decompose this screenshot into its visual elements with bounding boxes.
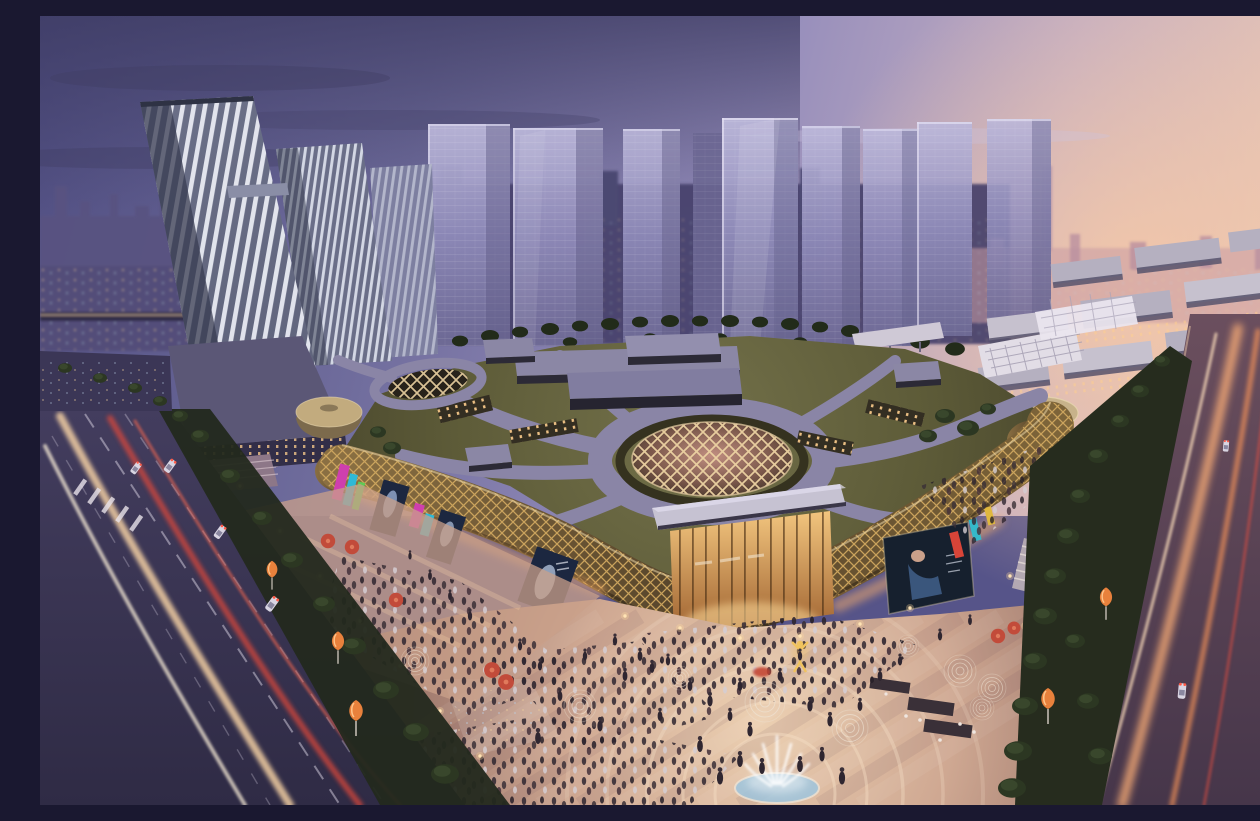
pedestrian bbox=[613, 634, 617, 646]
pedestrian bbox=[858, 698, 863, 711]
street-tree bbox=[128, 383, 142, 393]
street-lamp bbox=[1006, 572, 1014, 580]
street-tree bbox=[281, 552, 303, 567]
park-tree bbox=[1088, 748, 1112, 765]
street-tree bbox=[172, 410, 188, 421]
background-tree bbox=[812, 322, 828, 333]
street-tree bbox=[153, 396, 167, 406]
park-tree bbox=[1057, 528, 1079, 543]
roof-tree bbox=[980, 403, 996, 414]
pedestrian bbox=[623, 668, 628, 681]
street-lamp bbox=[476, 752, 484, 760]
background-tree bbox=[452, 336, 468, 347]
glass-tower-cluster bbox=[428, 118, 1051, 346]
pedestrian bbox=[408, 550, 411, 559]
corner-billboard-right bbox=[883, 522, 974, 614]
street-lamp bbox=[621, 612, 629, 620]
pedestrian bbox=[798, 649, 802, 661]
roof-tree bbox=[919, 430, 937, 443]
mall-aerial-rendering bbox=[40, 16, 1260, 805]
pedestrian bbox=[968, 614, 972, 625]
pedestrian bbox=[747, 722, 752, 737]
pedestrian bbox=[707, 692, 712, 707]
background-tree bbox=[945, 342, 965, 355]
pedestrian bbox=[428, 569, 432, 580]
pedestrian bbox=[583, 649, 587, 661]
pedestrian bbox=[650, 660, 655, 673]
background-tree bbox=[752, 317, 768, 328]
street-tree bbox=[252, 511, 272, 525]
pedestrian bbox=[535, 728, 541, 744]
park-tree bbox=[1033, 608, 1057, 625]
cafe-umbrella bbox=[389, 593, 403, 607]
pedestrian bbox=[827, 712, 832, 727]
red-sculpture bbox=[753, 667, 771, 677]
pedestrian bbox=[688, 678, 693, 691]
street-lamp bbox=[676, 624, 684, 632]
pedestrian bbox=[697, 736, 703, 752]
pedestrian bbox=[538, 659, 542, 671]
roof-tree bbox=[935, 409, 955, 423]
background-tree bbox=[692, 316, 708, 327]
pedestrian bbox=[778, 668, 783, 681]
street-tree bbox=[93, 373, 107, 383]
pedestrian bbox=[638, 648, 643, 661]
cafe-umbrella bbox=[1008, 622, 1021, 635]
pedestrian bbox=[666, 654, 670, 666]
roof-tree bbox=[370, 426, 386, 437]
park-tree bbox=[1023, 653, 1047, 670]
street-lamp bbox=[856, 620, 864, 628]
background-tree bbox=[572, 321, 588, 332]
park-tree bbox=[1004, 741, 1032, 761]
pedestrian bbox=[728, 708, 733, 721]
street-tree bbox=[58, 363, 72, 373]
roof-tree bbox=[383, 442, 401, 455]
pedestrian bbox=[898, 654, 902, 666]
background-tree bbox=[601, 318, 619, 330]
park-tree bbox=[1154, 355, 1170, 366]
cafe-umbrella bbox=[991, 629, 1005, 643]
park-tree bbox=[998, 778, 1026, 798]
cafe-umbrella bbox=[345, 540, 359, 554]
street-lamp bbox=[906, 604, 914, 612]
background-tree bbox=[721, 315, 739, 327]
street-tree bbox=[342, 638, 366, 655]
background-tree bbox=[661, 315, 679, 327]
roof-tree bbox=[957, 420, 979, 435]
cafe-umbrella bbox=[321, 534, 335, 548]
park-tree bbox=[1111, 415, 1129, 428]
street-tree bbox=[403, 723, 429, 741]
pedestrian bbox=[448, 589, 452, 600]
pedestrian bbox=[819, 747, 824, 762]
pedestrian bbox=[518, 639, 522, 651]
street-lamp bbox=[796, 632, 804, 640]
car bbox=[1177, 683, 1186, 699]
park-tree bbox=[1131, 385, 1149, 398]
cafe-umbrella bbox=[484, 662, 500, 678]
street-tree bbox=[431, 764, 459, 784]
pedestrian bbox=[658, 708, 663, 721]
park-tree bbox=[1044, 568, 1066, 583]
background-tree bbox=[512, 327, 528, 338]
background-tree bbox=[781, 318, 799, 330]
pedestrian bbox=[597, 717, 602, 732]
park-tree bbox=[1065, 634, 1085, 648]
pedestrian bbox=[839, 767, 845, 784]
pedestrian bbox=[738, 678, 743, 691]
pedestrian bbox=[878, 668, 883, 681]
pedestrian bbox=[807, 697, 812, 712]
park-tree bbox=[1077, 693, 1099, 708]
pedestrian bbox=[468, 609, 472, 621]
pedestrian bbox=[558, 688, 563, 701]
park-tree bbox=[1070, 489, 1090, 503]
park-tree bbox=[1088, 449, 1108, 463]
pedestrian bbox=[938, 629, 942, 641]
pedestrian bbox=[717, 767, 723, 784]
car bbox=[1223, 440, 1230, 452]
street-lamp bbox=[736, 634, 744, 642]
background-tree bbox=[541, 323, 559, 335]
street-tree bbox=[313, 596, 335, 611]
background-tree bbox=[632, 317, 648, 328]
street-tree bbox=[191, 430, 209, 443]
street-tree bbox=[220, 469, 240, 483]
pedestrian bbox=[797, 756, 803, 772]
park-tree bbox=[1012, 697, 1038, 715]
cafe-umbrella bbox=[498, 674, 514, 690]
pedestrian bbox=[759, 758, 765, 774]
street-tree bbox=[373, 681, 399, 699]
pedestrian bbox=[737, 751, 743, 767]
